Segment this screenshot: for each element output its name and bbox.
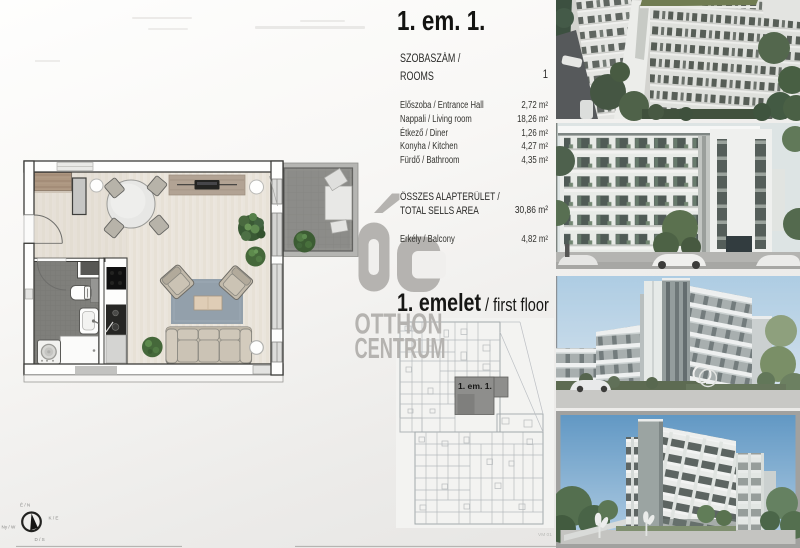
svg-text:1. em. 1.: 1. em. 1.	[458, 381, 492, 391]
svg-text:É / N: É / N	[20, 502, 30, 508]
svg-text:VM 01: VM 01	[538, 532, 552, 538]
svg-text:Ny / W: Ny / W	[2, 525, 16, 530]
svg-text:CENTRUM: CENTRUM	[355, 333, 446, 365]
svg-text:D / S: D / S	[35, 537, 45, 542]
svg-text:K / E: K / E	[49, 516, 59, 521]
